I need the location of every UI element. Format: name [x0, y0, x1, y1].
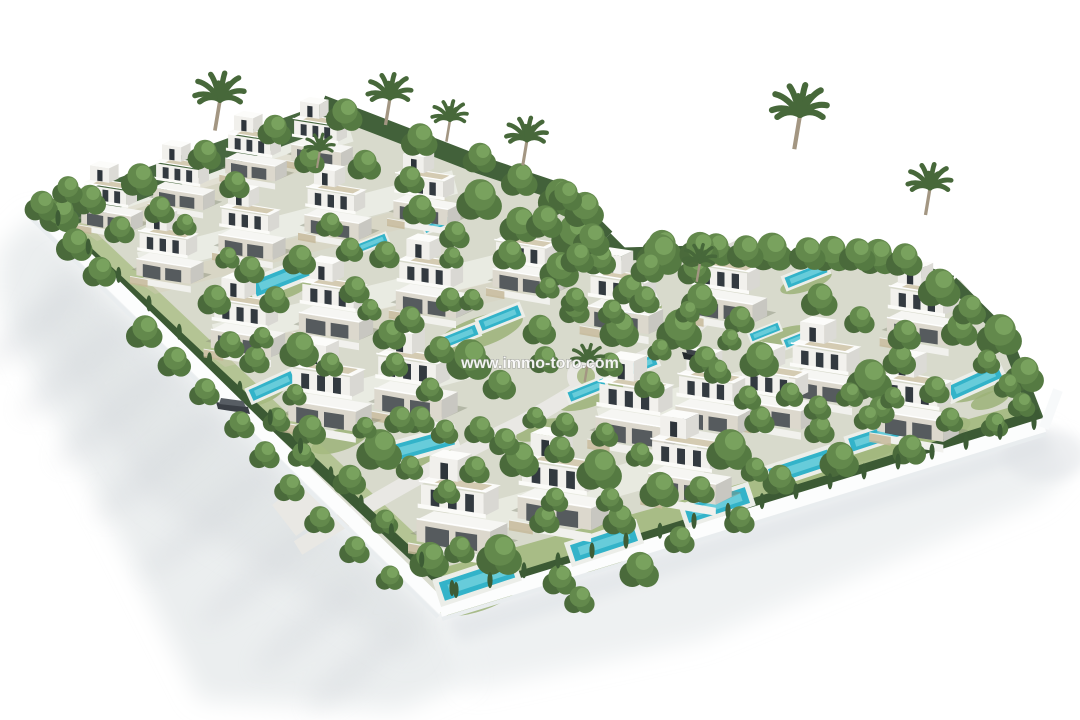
svg-text:www.immo-toro.com: www.immo-toro.com: [460, 355, 619, 372]
